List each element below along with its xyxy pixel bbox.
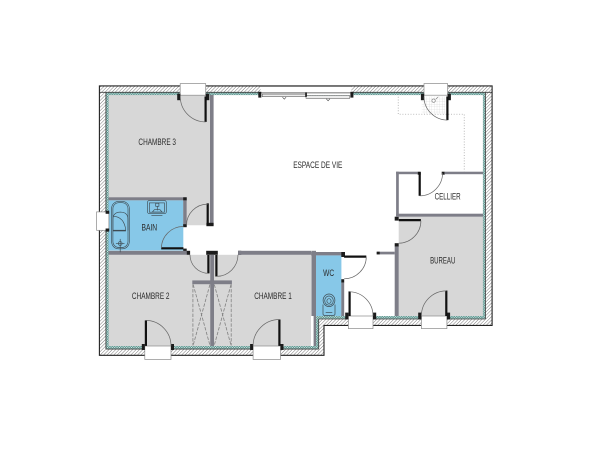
svg-text:ESPACE DE VIE: ESPACE DE VIE (293, 160, 342, 170)
svg-text:CHAMBRE 2: CHAMBRE 2 (132, 291, 170, 301)
svg-text:CHAMBRE 1: CHAMBRE 1 (254, 291, 292, 301)
svg-text:CELLIER: CELLIER (435, 191, 461, 202)
svg-text:WC: WC (323, 268, 334, 278)
svg-text:CHAMBRE 3: CHAMBRE 3 (138, 137, 176, 147)
svg-text:BUREAU: BUREAU (430, 255, 456, 266)
svg-text:BAIN: BAIN (141, 222, 157, 232)
